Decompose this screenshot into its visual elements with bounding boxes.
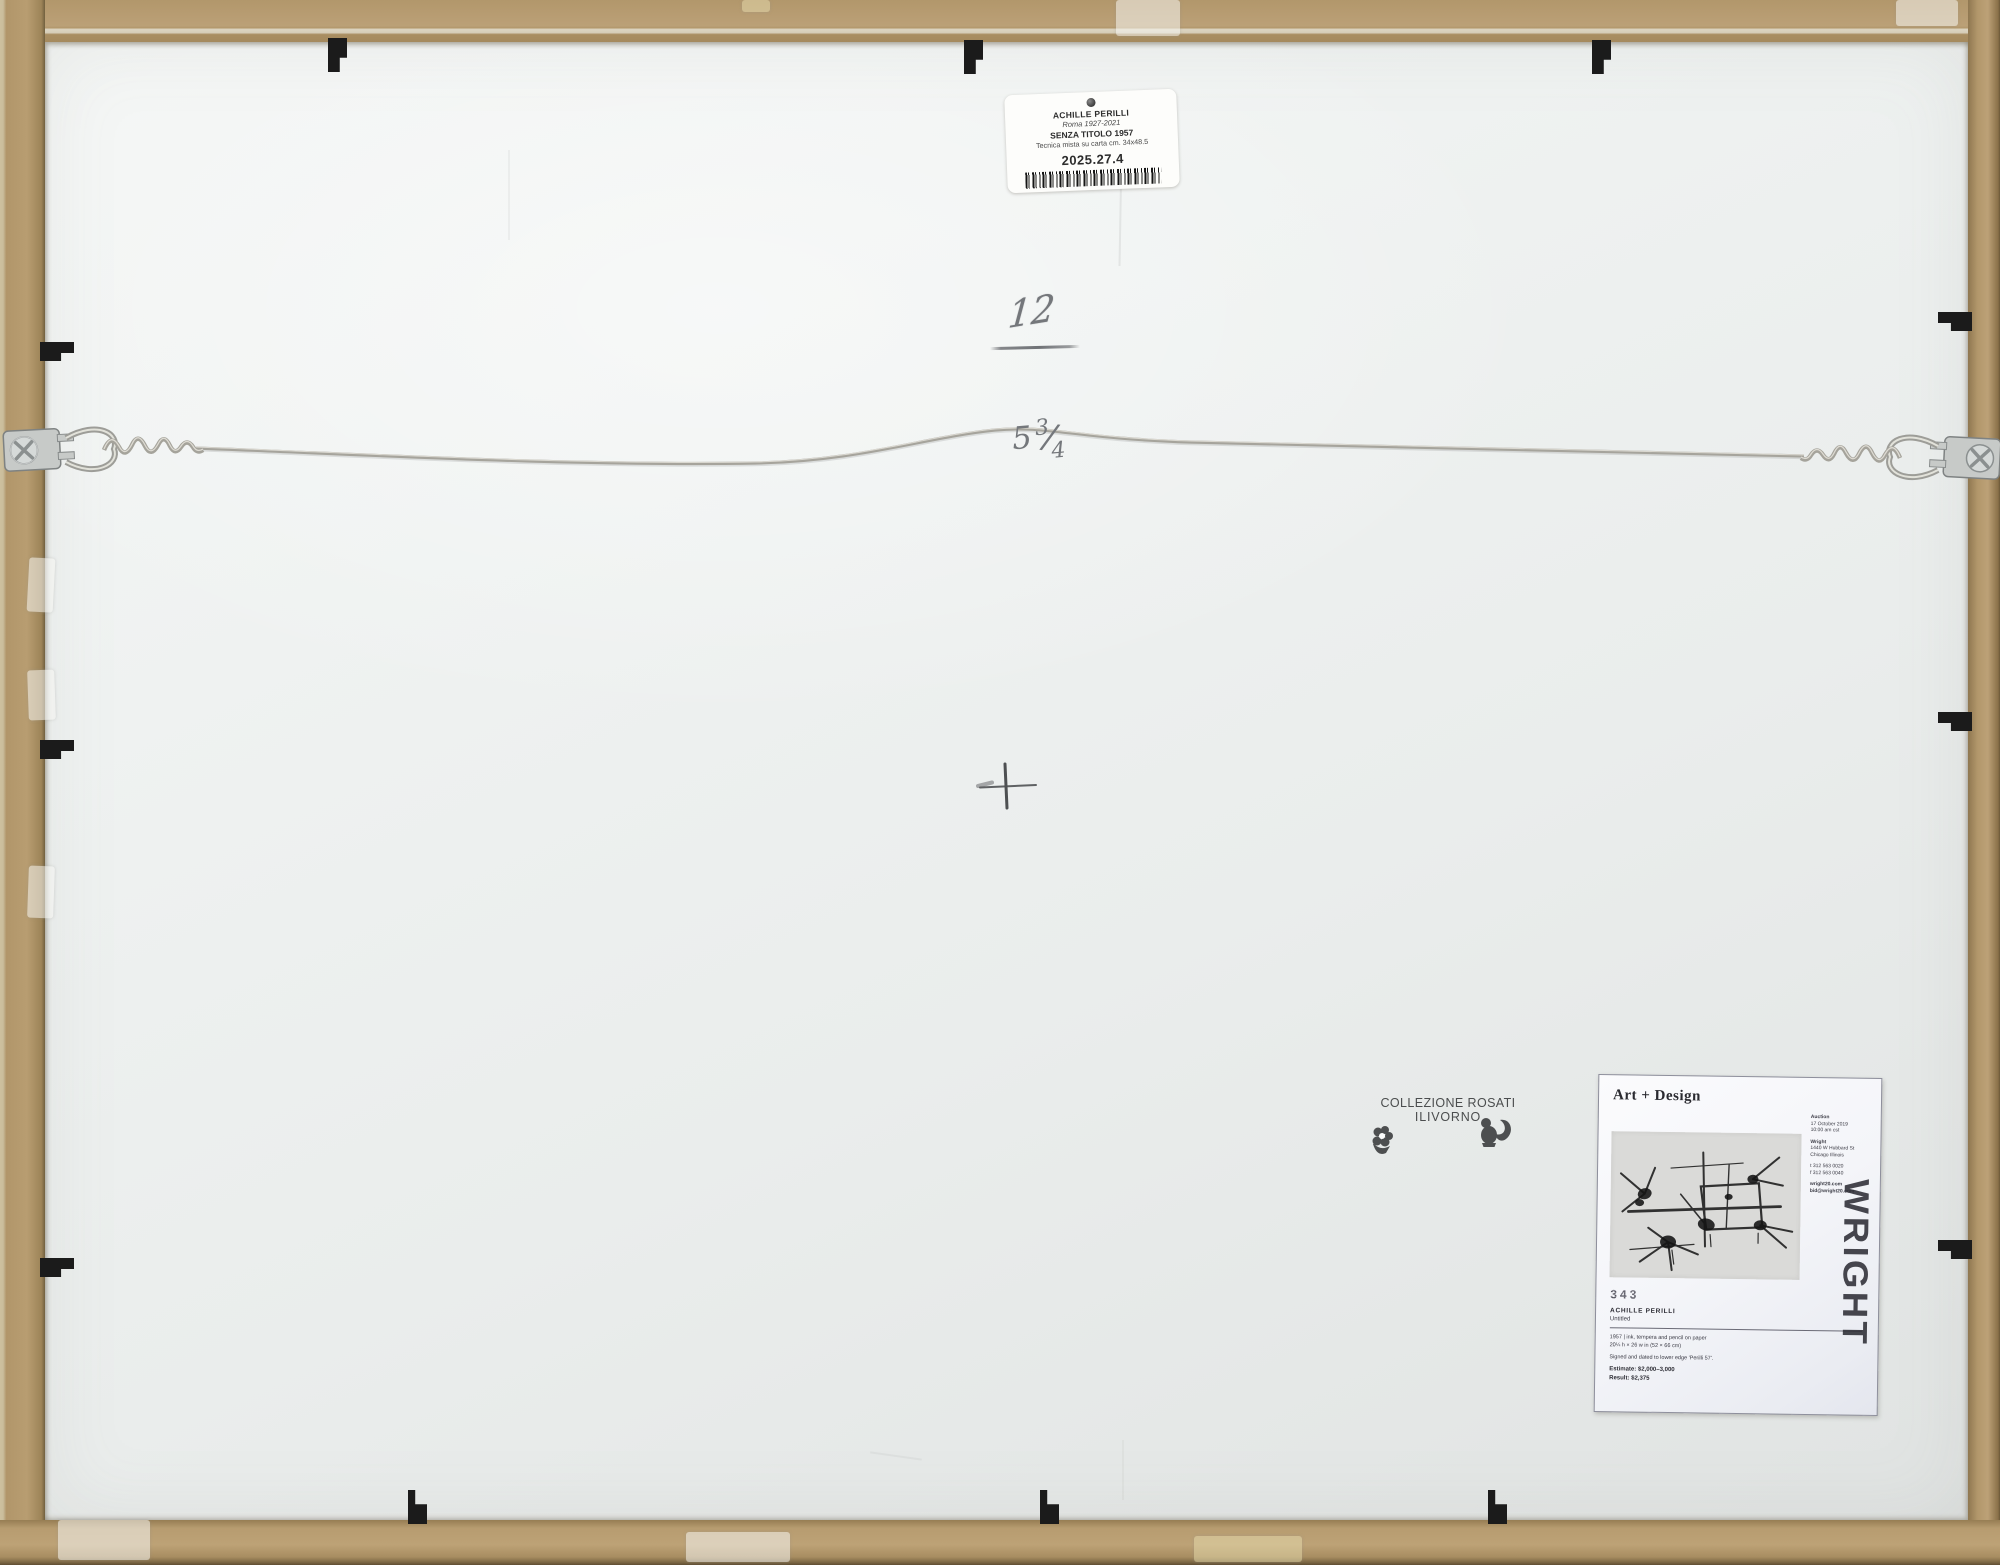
wright-logo: WRIGHT xyxy=(1833,1179,1876,1417)
lot-work-title: Untitled xyxy=(1610,1316,1630,1322)
handwritten-number: 12 xyxy=(1006,286,1056,338)
lot-result: Result: $2,375 xyxy=(1609,1375,1649,1382)
measurement-denominator: 4 xyxy=(1051,438,1067,464)
handwritten-measurement: 53/4 xyxy=(1010,414,1065,458)
inventory-label: ACHILLE PERILLI Roma 1927-2021 SENZA TIT… xyxy=(1004,89,1180,194)
lot-artist: ACHILLE PERILLI xyxy=(1610,1307,1675,1315)
auction-label: Art + Design Auction 17 October 2019 10:… xyxy=(1594,1074,1883,1416)
registration-cross xyxy=(968,758,1048,812)
lot-medium: 1957 | ink, tempera and pencil on paper xyxy=(1610,1334,1707,1341)
right-d-ring-hanger xyxy=(1794,400,2000,510)
lot-signature-note: Signed and dated to lower edge 'Perilli … xyxy=(1609,1354,1713,1361)
squirrel-stamp-icon xyxy=(1478,1112,1514,1148)
measurement-whole: 5 xyxy=(1011,420,1034,458)
lot-divider xyxy=(1610,1327,1862,1332)
framed-artwork-back-photo: ACHILLE PERILLI Roma 1927-2021 SENZA TIT… xyxy=(0,0,2000,1565)
barcode xyxy=(1025,167,1162,188)
rosette-stamp-icon xyxy=(1368,1124,1396,1156)
lot-dimensions: 20¼ h × 26 w in (52 × 66 cm) xyxy=(1610,1342,1682,1349)
auction-title: Art + Design xyxy=(1613,1087,1701,1105)
lot-number: 343 xyxy=(1610,1287,1639,1301)
stamp-line1: COLLEZIONE ROSATI xyxy=(1368,1096,1528,1110)
label-logo-dot-icon xyxy=(1086,98,1095,107)
left-d-ring-hanger xyxy=(0,392,210,502)
artwork-photo xyxy=(1610,1131,1802,1280)
lot-estimate: Estimate: $2,000–3,000 xyxy=(1609,1366,1674,1373)
